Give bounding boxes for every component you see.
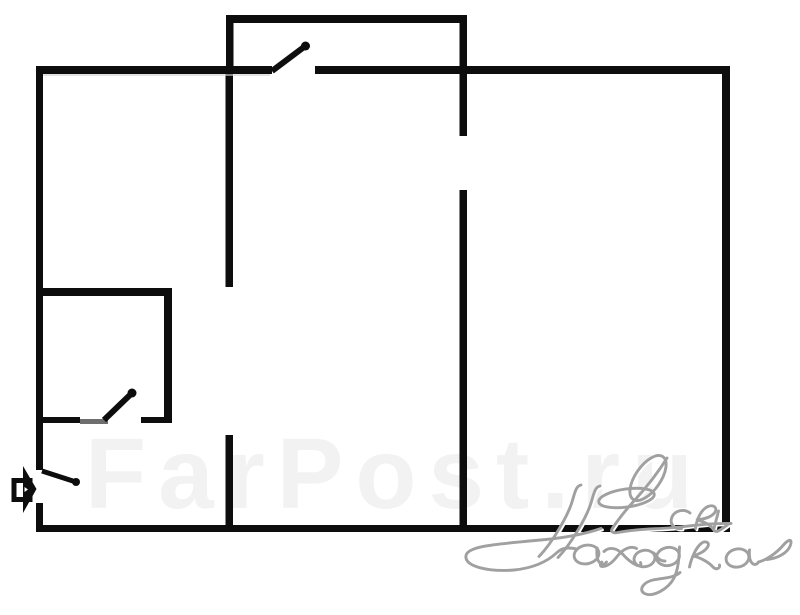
svg-text:FarPost.ru: FarPost.ru: [85, 418, 705, 530]
